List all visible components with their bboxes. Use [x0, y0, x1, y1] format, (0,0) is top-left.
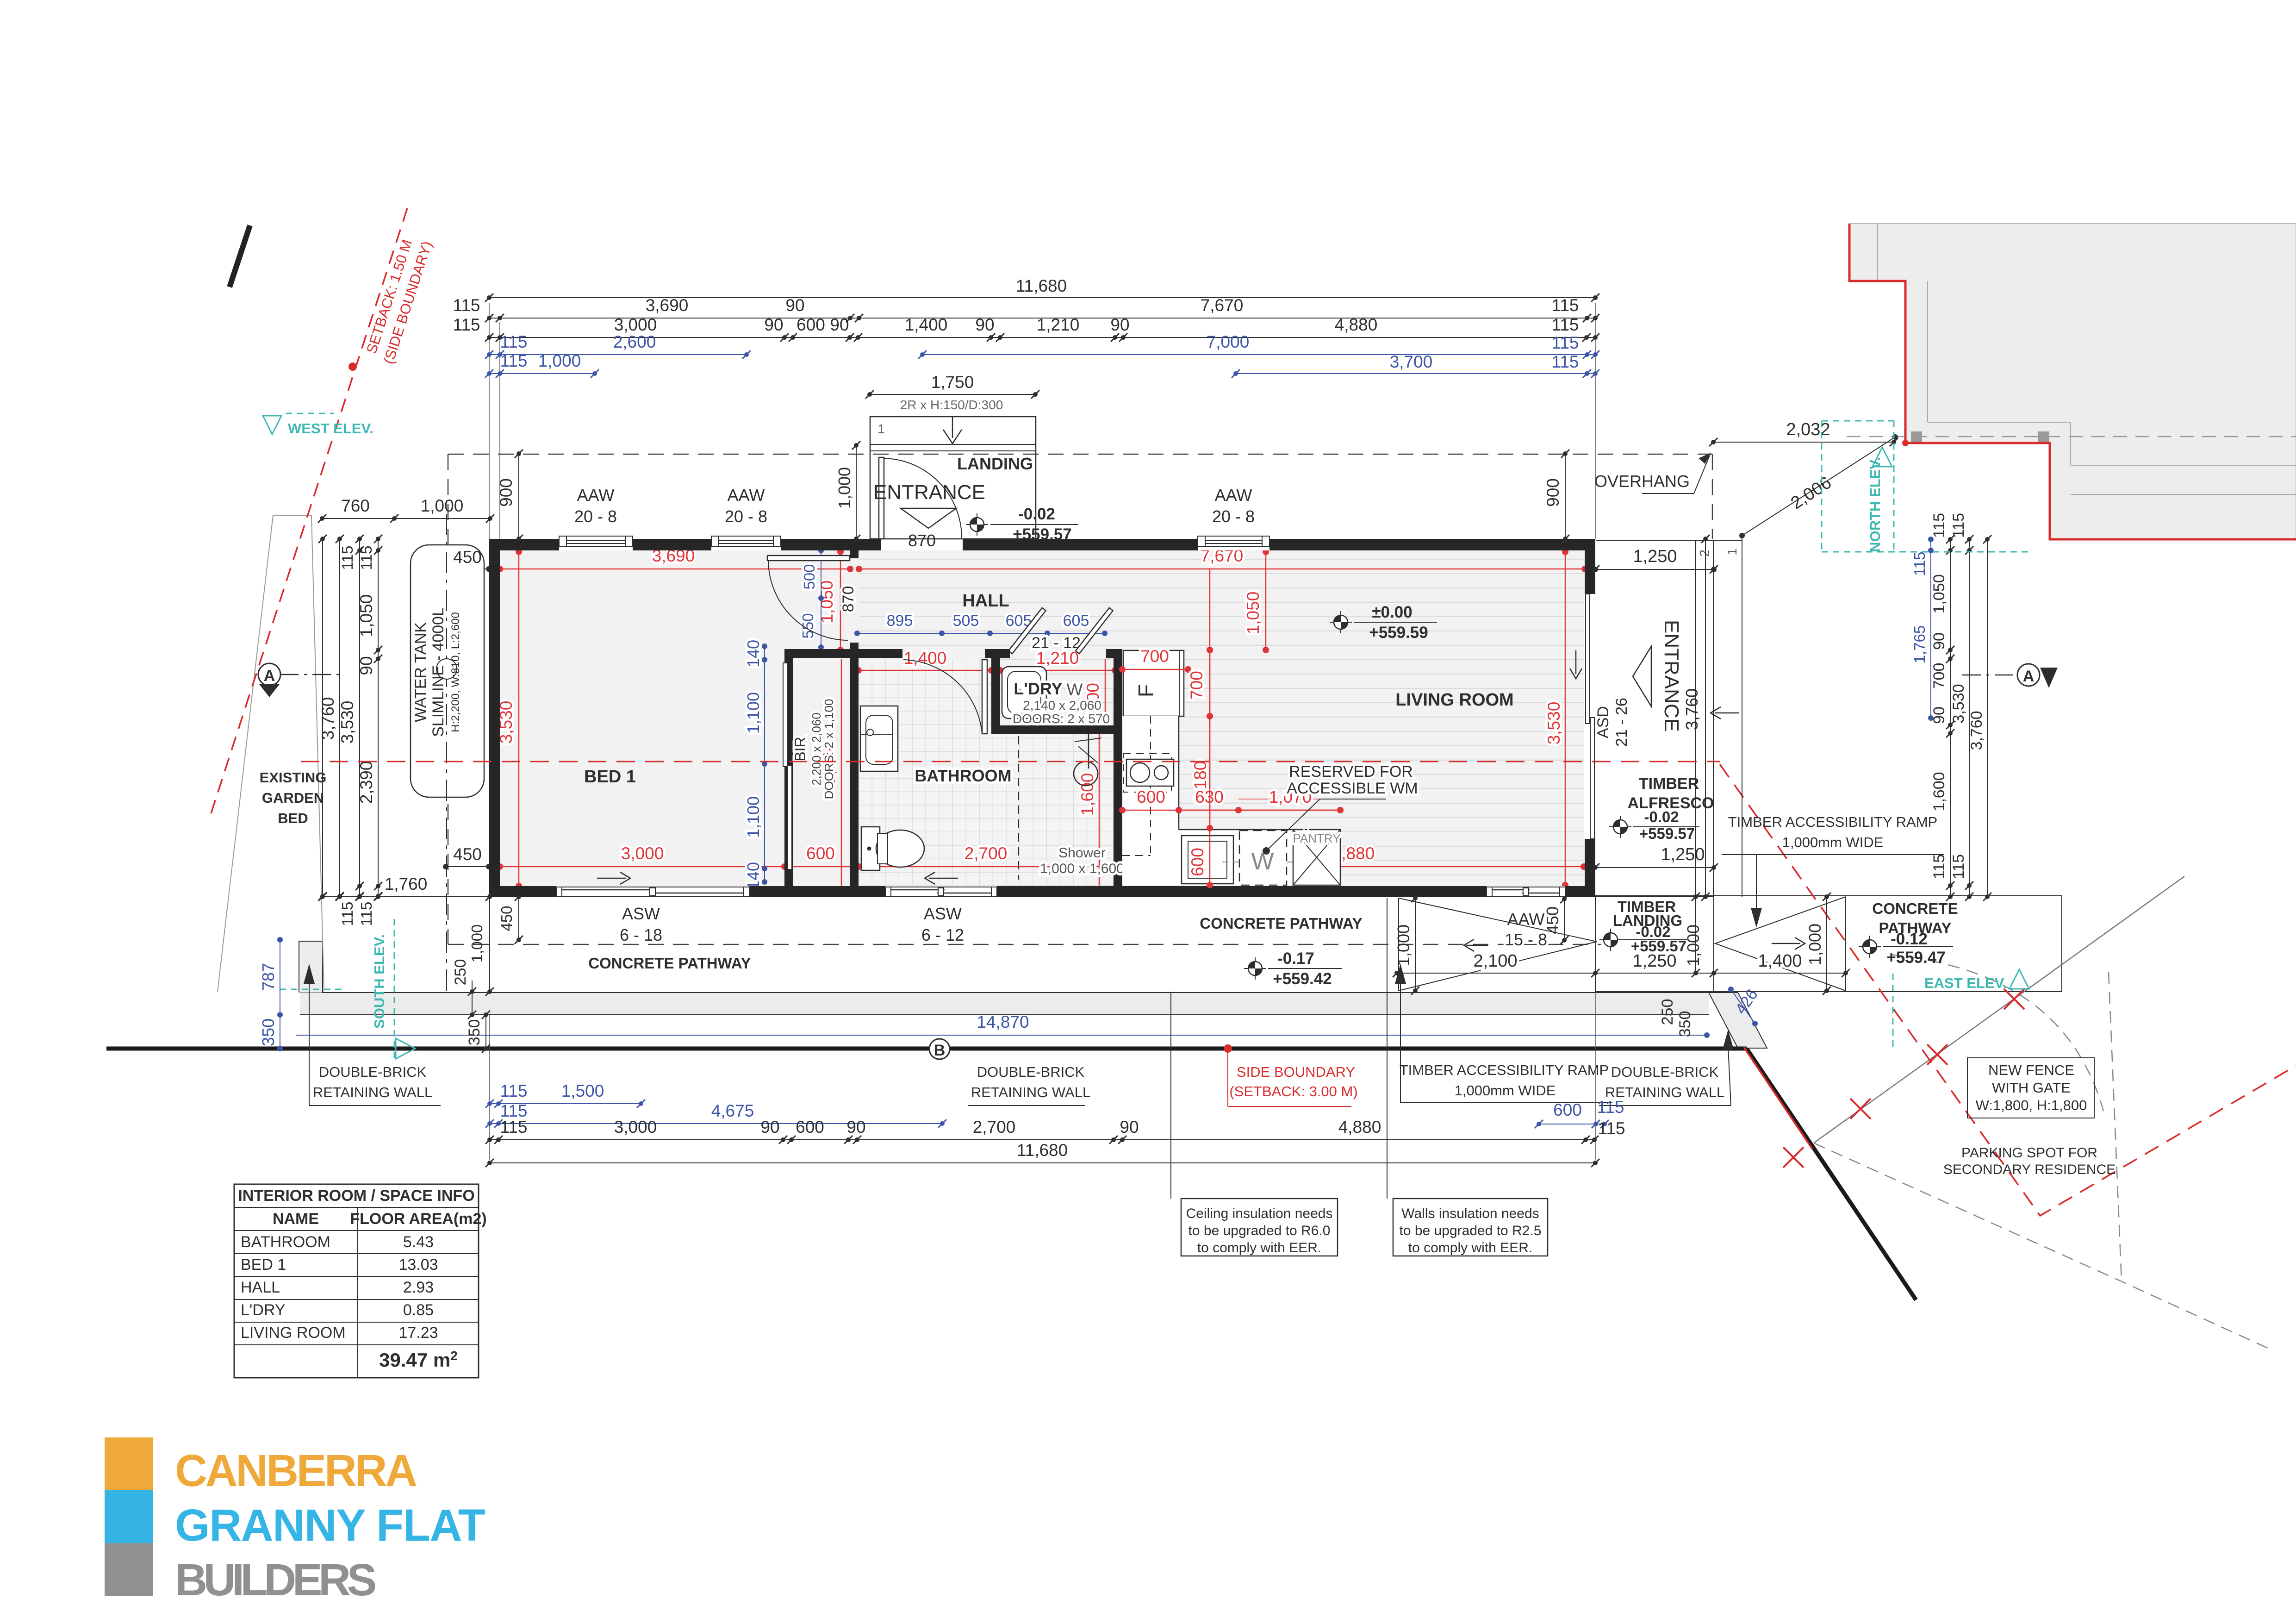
svg-text:TIMBER: TIMBER: [1639, 775, 1699, 793]
svg-text:13.03: 13.03: [398, 1256, 438, 1274]
svg-text:WATER TANK: WATER TANK: [412, 622, 429, 722]
svg-text:21 - 26: 21 - 26: [1613, 698, 1630, 747]
svg-text:350: 350: [259, 1018, 278, 1046]
svg-text:115: 115: [1598, 1119, 1625, 1138]
svg-text:1,600: 1,600: [1078, 773, 1097, 816]
svg-text:600: 600: [1553, 1100, 1582, 1119]
svg-text:AAW: AAW: [728, 486, 765, 505]
svg-text:BIR: BIR: [792, 737, 809, 761]
svg-text:2,140 x 2,060: 2,140 x 2,060: [1023, 698, 1101, 712]
svg-text:0.85: 0.85: [403, 1301, 434, 1319]
svg-text:550: 550: [799, 613, 816, 638]
svg-text:3,690: 3,690: [646, 296, 689, 315]
svg-text:115: 115: [1911, 552, 1928, 576]
svg-text:ASD: ASD: [1594, 706, 1612, 738]
svg-text:7,000: 7,000: [1207, 332, 1250, 351]
svg-text:870: 870: [840, 586, 857, 612]
svg-text:1,000: 1,000: [1684, 924, 1703, 966]
svg-text:Shower: Shower: [1058, 845, 1106, 861]
svg-text:115: 115: [453, 315, 480, 334]
svg-text:600: 600: [796, 315, 825, 334]
svg-text:1,000: 1,000: [1805, 924, 1824, 965]
svg-text:EXISTING: EXISTING: [260, 769, 327, 786]
svg-text:20 - 8: 20 - 8: [574, 507, 617, 526]
svg-text:1,050: 1,050: [1930, 574, 1948, 613]
svg-text:+559.57: +559.57: [1639, 825, 1695, 842]
svg-text:1,000: 1,000: [468, 924, 485, 963]
svg-text:700: 700: [1140, 647, 1169, 666]
svg-text:+559.59: +559.59: [1369, 624, 1428, 642]
svg-text:HALL: HALL: [962, 591, 1009, 611]
svg-text:HALL: HALL: [241, 1279, 280, 1296]
svg-text:DOORS: 2 x 1,100: DOORS: 2 x 1,100: [822, 699, 836, 800]
svg-text:A: A: [264, 667, 275, 685]
svg-text:AAW: AAW: [577, 486, 615, 505]
svg-text:2R x H:150/D:300: 2R x H:150/D:300: [900, 398, 1003, 412]
svg-text:H:2,200, W:810, L:2,600: H:2,200, W:810, L:2,600: [449, 612, 462, 732]
svg-text:AAW: AAW: [1215, 486, 1252, 505]
svg-text:LIVING ROOM: LIVING ROOM: [241, 1324, 346, 1342]
svg-text:115: 115: [500, 351, 528, 370]
svg-text:2,100: 2,100: [1473, 951, 1517, 971]
svg-text:2,032: 2,032: [1786, 420, 1830, 439]
svg-text:115: 115: [1552, 352, 1579, 371]
svg-text:EAST ELEV.: EAST ELEV.: [1924, 975, 2007, 991]
svg-text:90: 90: [785, 296, 804, 315]
svg-text:DOUBLE-BRICK: DOUBLE-BRICK: [319, 1064, 427, 1080]
svg-text:DOUBLE-BRICK: DOUBLE-BRICK: [977, 1064, 1085, 1080]
svg-text:700: 700: [1930, 663, 1948, 689]
svg-text:39.47 m2: 39.47 m2: [379, 1349, 458, 1371]
svg-text:CONCRETE: CONCRETE: [1872, 900, 1958, 917]
svg-text:GARDEN: GARDEN: [262, 790, 324, 806]
svg-text:TIMBER ACCESSIBILITY RAMP: TIMBER ACCESSIBILITY RAMP: [1728, 814, 1937, 830]
svg-text:2.93: 2.93: [403, 1279, 434, 1296]
svg-text:LANDING: LANDING: [957, 454, 1033, 473]
svg-text:115: 115: [453, 296, 480, 315]
svg-text:2,390: 2,390: [357, 761, 376, 804]
svg-text:DOORS: 2 x 570: DOORS: 2 x 570: [1013, 712, 1110, 726]
svg-text:870: 870: [908, 531, 936, 550]
svg-text:FLOOR AREA(m2): FLOOR AREA(m2): [350, 1210, 486, 1228]
svg-text:to comply with EER.: to comply with EER.: [1408, 1240, 1532, 1255]
svg-text:350: 350: [466, 1019, 483, 1046]
svg-text:1,500: 1,500: [561, 1081, 604, 1100]
svg-text:CONCRETE PATHWAY: CONCRETE PATHWAY: [588, 955, 751, 972]
svg-text:90: 90: [1930, 632, 1948, 650]
svg-text:ASW: ASW: [622, 904, 660, 923]
svg-text:3,530: 3,530: [1950, 684, 1967, 723]
svg-text:760: 760: [341, 496, 370, 515]
svg-text:3,760: 3,760: [318, 697, 337, 740]
svg-text:-0.02: -0.02: [1018, 505, 1055, 523]
svg-text:1,100: 1,100: [744, 692, 763, 734]
svg-text:BED 1: BED 1: [584, 767, 636, 787]
svg-text:4,880: 4,880: [1338, 1118, 1381, 1137]
svg-text:115: 115: [1930, 854, 1948, 879]
svg-text:1: 1: [877, 422, 885, 436]
svg-text:3,000: 3,000: [614, 315, 657, 334]
svg-text:3,000: 3,000: [614, 1118, 657, 1137]
svg-text:PARKING SPOT FOR: PARKING SPOT FOR: [1961, 1145, 2097, 1161]
svg-text:1,000mm WIDE: 1,000mm WIDE: [1782, 834, 1884, 850]
svg-text:INTERIOR ROOM / SPACE INFO: INTERIOR ROOM / SPACE INFO: [238, 1187, 474, 1205]
svg-text:1,250: 1,250: [1633, 547, 1677, 566]
svg-text:1,050: 1,050: [357, 594, 376, 637]
svg-text:NORTH ELEV.: NORTH ELEV.: [1867, 457, 1883, 552]
svg-text:900: 900: [497, 478, 516, 507]
svg-text:3,760: 3,760: [1968, 711, 1985, 750]
svg-text:90: 90: [975, 315, 994, 334]
svg-text:F: F: [1134, 684, 1158, 697]
svg-text:BATHROOM: BATHROOM: [915, 766, 1011, 785]
svg-text:+559.57: +559.57: [1013, 525, 1072, 543]
svg-text:115: 115: [358, 902, 375, 926]
svg-text:ENTRANCE: ENTRANCE: [1660, 620, 1683, 732]
svg-text:140: 140: [744, 640, 763, 668]
svg-text:115: 115: [500, 1118, 528, 1137]
svg-text:450: 450: [498, 906, 515, 931]
svg-text:TIMBER ACCESSIBILITY RAMP: TIMBER ACCESSIBILITY RAMP: [1400, 1062, 1609, 1078]
svg-text:6 - 18: 6 - 18: [620, 925, 662, 944]
svg-text:ASW: ASW: [924, 904, 962, 923]
svg-text:CANBERRA: CANBERRA: [175, 1445, 417, 1496]
svg-text:1,250: 1,250: [1632, 951, 1676, 971]
svg-text:140: 140: [744, 862, 763, 890]
svg-text:2,600: 2,600: [613, 332, 656, 351]
svg-text:RETAINING WALL: RETAINING WALL: [971, 1084, 1090, 1100]
svg-text:4,675: 4,675: [711, 1101, 754, 1120]
svg-text:W:1,800, H:1,800: W:1,800, H:1,800: [1976, 1097, 2087, 1113]
svg-text:115: 115: [1552, 315, 1579, 334]
svg-text:±0.00: ±0.00: [1372, 603, 1412, 621]
svg-text:15 - 8: 15 - 8: [1505, 930, 1547, 949]
svg-text:17.23: 17.23: [398, 1324, 438, 1342]
svg-text:2,700: 2,700: [973, 1118, 1016, 1137]
svg-text:BATHROOM: BATHROOM: [241, 1233, 330, 1251]
svg-text:250: 250: [452, 959, 469, 986]
svg-text:-0.02: -0.02: [1644, 808, 1679, 825]
svg-text:W: W: [1067, 680, 1083, 699]
svg-text:1,210: 1,210: [1037, 315, 1080, 334]
svg-text:Walls insulation needs: Walls insulation needs: [1401, 1206, 1539, 1221]
svg-text:RESERVED FOR: RESERVED FOR: [1289, 763, 1413, 781]
svg-text:CONCRETE PATHWAY: CONCRETE PATHWAY: [1200, 915, 1362, 932]
svg-text:OVERHANG: OVERHANG: [1594, 472, 1690, 491]
svg-text:250: 250: [1659, 999, 1676, 1025]
svg-text:6 - 12: 6 - 12: [921, 925, 964, 944]
svg-text:450: 450: [1543, 906, 1562, 934]
svg-text:SECONDARY RESIDENCE: SECONDARY RESIDENCE: [1943, 1162, 2116, 1177]
svg-text:505: 505: [953, 612, 979, 630]
svg-text:700: 700: [1187, 671, 1206, 700]
svg-text:14,870: 14,870: [977, 1012, 1029, 1031]
svg-text:605: 605: [1063, 612, 1089, 630]
svg-text:115: 115: [358, 546, 375, 570]
svg-text:3,000: 3,000: [621, 844, 664, 863]
svg-text:115: 115: [500, 332, 528, 351]
svg-text:90: 90: [357, 656, 376, 675]
svg-text:to be upgraded to R6.0: to be upgraded to R6.0: [1188, 1223, 1331, 1238]
svg-text:115: 115: [500, 1081, 528, 1100]
svg-text:ENTRANCE: ENTRANCE: [873, 481, 985, 504]
svg-text:1: 1: [1725, 548, 1739, 556]
svg-text:5.43: 5.43: [403, 1233, 434, 1251]
svg-text:1,000: 1,000: [538, 351, 581, 370]
svg-text:20 - 8: 20 - 8: [1212, 507, 1255, 526]
svg-text:SIDE BOUNDARY: SIDE BOUNDARY: [1237, 1064, 1355, 1080]
svg-text:787: 787: [259, 963, 278, 991]
svg-text:1,000: 1,000: [835, 467, 854, 509]
svg-text:GRANNY FLAT: GRANNY FLAT: [175, 1500, 485, 1550]
svg-text:to be upgraded to R2.5: to be upgraded to R2.5: [1400, 1223, 1542, 1238]
svg-text:450: 450: [453, 845, 482, 864]
svg-text:WITH GATE: WITH GATE: [1992, 1080, 2071, 1096]
svg-text:SLIMLINE - 4000L: SLIMLINE - 4000L: [429, 607, 447, 737]
svg-text:90: 90: [846, 1118, 865, 1137]
svg-text:90: 90: [760, 1118, 779, 1137]
svg-text:900: 900: [1543, 478, 1562, 507]
svg-text:600: 600: [806, 844, 835, 863]
svg-text:1,765: 1,765: [1911, 625, 1928, 664]
svg-text:90: 90: [830, 315, 849, 334]
svg-text:1,600: 1,600: [1930, 772, 1948, 811]
svg-text:90: 90: [764, 315, 783, 334]
svg-text:115: 115: [1950, 854, 1967, 879]
svg-text:+559.42: +559.42: [1273, 970, 1332, 988]
svg-text:115: 115: [1930, 513, 1948, 538]
svg-text:21 - 12: 21 - 12: [1032, 634, 1081, 652]
svg-text:1,050: 1,050: [817, 581, 836, 624]
svg-text:1,100: 1,100: [744, 796, 763, 838]
svg-text:B: B: [934, 1042, 946, 1059]
svg-text:2: 2: [1697, 550, 1711, 557]
svg-text:90: 90: [1930, 706, 1948, 724]
svg-text:SOUTH ELEV.: SOUTH ELEV.: [371, 934, 387, 1029]
svg-text:115: 115: [1552, 296, 1579, 315]
svg-text:1,050: 1,050: [1244, 592, 1263, 635]
svg-text:RETAINING WALL: RETAINING WALL: [313, 1084, 432, 1100]
svg-text:NAME: NAME: [273, 1210, 319, 1228]
svg-text:115: 115: [1597, 1098, 1624, 1117]
svg-text:1,000mm WIDE: 1,000mm WIDE: [1455, 1082, 1556, 1099]
svg-text:2,200 x 2,060: 2,200 x 2,060: [809, 712, 823, 786]
svg-text:+559.47: +559.47: [1886, 949, 1946, 967]
svg-text:350: 350: [1676, 1011, 1694, 1037]
svg-text:1,400: 1,400: [1758, 951, 1802, 971]
svg-text:600: 600: [1188, 848, 1207, 876]
svg-text:115: 115: [1552, 333, 1579, 352]
svg-text:NEW FENCE: NEW FENCE: [1988, 1062, 2074, 1078]
svg-text:1,400: 1,400: [904, 649, 947, 668]
svg-text:1,250: 1,250: [1661, 845, 1705, 864]
svg-text:1,760: 1,760: [385, 874, 428, 893]
svg-text:115: 115: [339, 902, 356, 926]
svg-text:L'DRY: L'DRY: [241, 1301, 286, 1319]
svg-text:3,530: 3,530: [338, 701, 357, 744]
svg-text:L'DRY: L'DRY: [1014, 679, 1062, 698]
svg-text:20 - 8: 20 - 8: [725, 507, 767, 526]
svg-text:Ceiling insulation needs: Ceiling insulation needs: [1186, 1206, 1333, 1221]
svg-text:11,680: 11,680: [1016, 276, 1067, 295]
svg-text:1,750: 1,750: [931, 373, 974, 392]
svg-text:BED: BED: [278, 810, 308, 826]
svg-text:ACCESSIBLE WM: ACCESSIBLE WM: [1287, 780, 1418, 797]
svg-text:2,700: 2,700: [964, 844, 1008, 863]
svg-text:1,400: 1,400: [905, 315, 948, 334]
svg-text:BUILDERS: BUILDERS: [175, 1555, 375, 1605]
svg-text:-0.17: -0.17: [1277, 949, 1314, 968]
svg-text:3,700: 3,700: [1390, 352, 1433, 371]
svg-text:90: 90: [1110, 315, 1129, 334]
svg-text:3,760: 3,760: [1682, 688, 1701, 730]
svg-text:600: 600: [796, 1118, 824, 1137]
svg-text:A: A: [2023, 668, 2035, 685]
svg-text:1,000: 1,000: [1394, 924, 1413, 966]
svg-text:115: 115: [339, 546, 356, 570]
svg-text:450: 450: [453, 548, 482, 567]
svg-text:-0.12: -0.12: [1891, 930, 1928, 948]
svg-text:BED 1: BED 1: [241, 1256, 286, 1274]
svg-text:600: 600: [1137, 787, 1165, 806]
svg-text:1,000 x 1,600: 1,000 x 1,600: [1040, 861, 1124, 876]
svg-text:WEST ELEV.: WEST ELEV.: [288, 420, 373, 437]
svg-text:to comply with EER.: to comply with EER.: [1197, 1240, 1321, 1255]
svg-text:W: W: [1251, 848, 1274, 875]
svg-text:7,670: 7,670: [1201, 296, 1244, 315]
svg-text:11,680: 11,680: [1017, 1141, 1068, 1160]
svg-text:4,880: 4,880: [1335, 315, 1378, 334]
svg-text:3,530: 3,530: [1544, 702, 1563, 745]
svg-text:500: 500: [801, 564, 818, 589]
svg-text:90: 90: [1120, 1118, 1139, 1137]
svg-text:115: 115: [1950, 513, 1967, 538]
svg-text:1,000: 1,000: [421, 496, 464, 515]
svg-text:(SETBACK: 3.00 M): (SETBACK: 3.00 M): [1229, 1083, 1357, 1099]
svg-text:PANTRY: PANTRY: [1293, 831, 1340, 845]
svg-text:895: 895: [887, 612, 913, 630]
svg-text:DOUBLE-BRICK: DOUBLE-BRICK: [1611, 1064, 1719, 1080]
svg-text:LIVING ROOM: LIVING ROOM: [1395, 690, 1513, 710]
